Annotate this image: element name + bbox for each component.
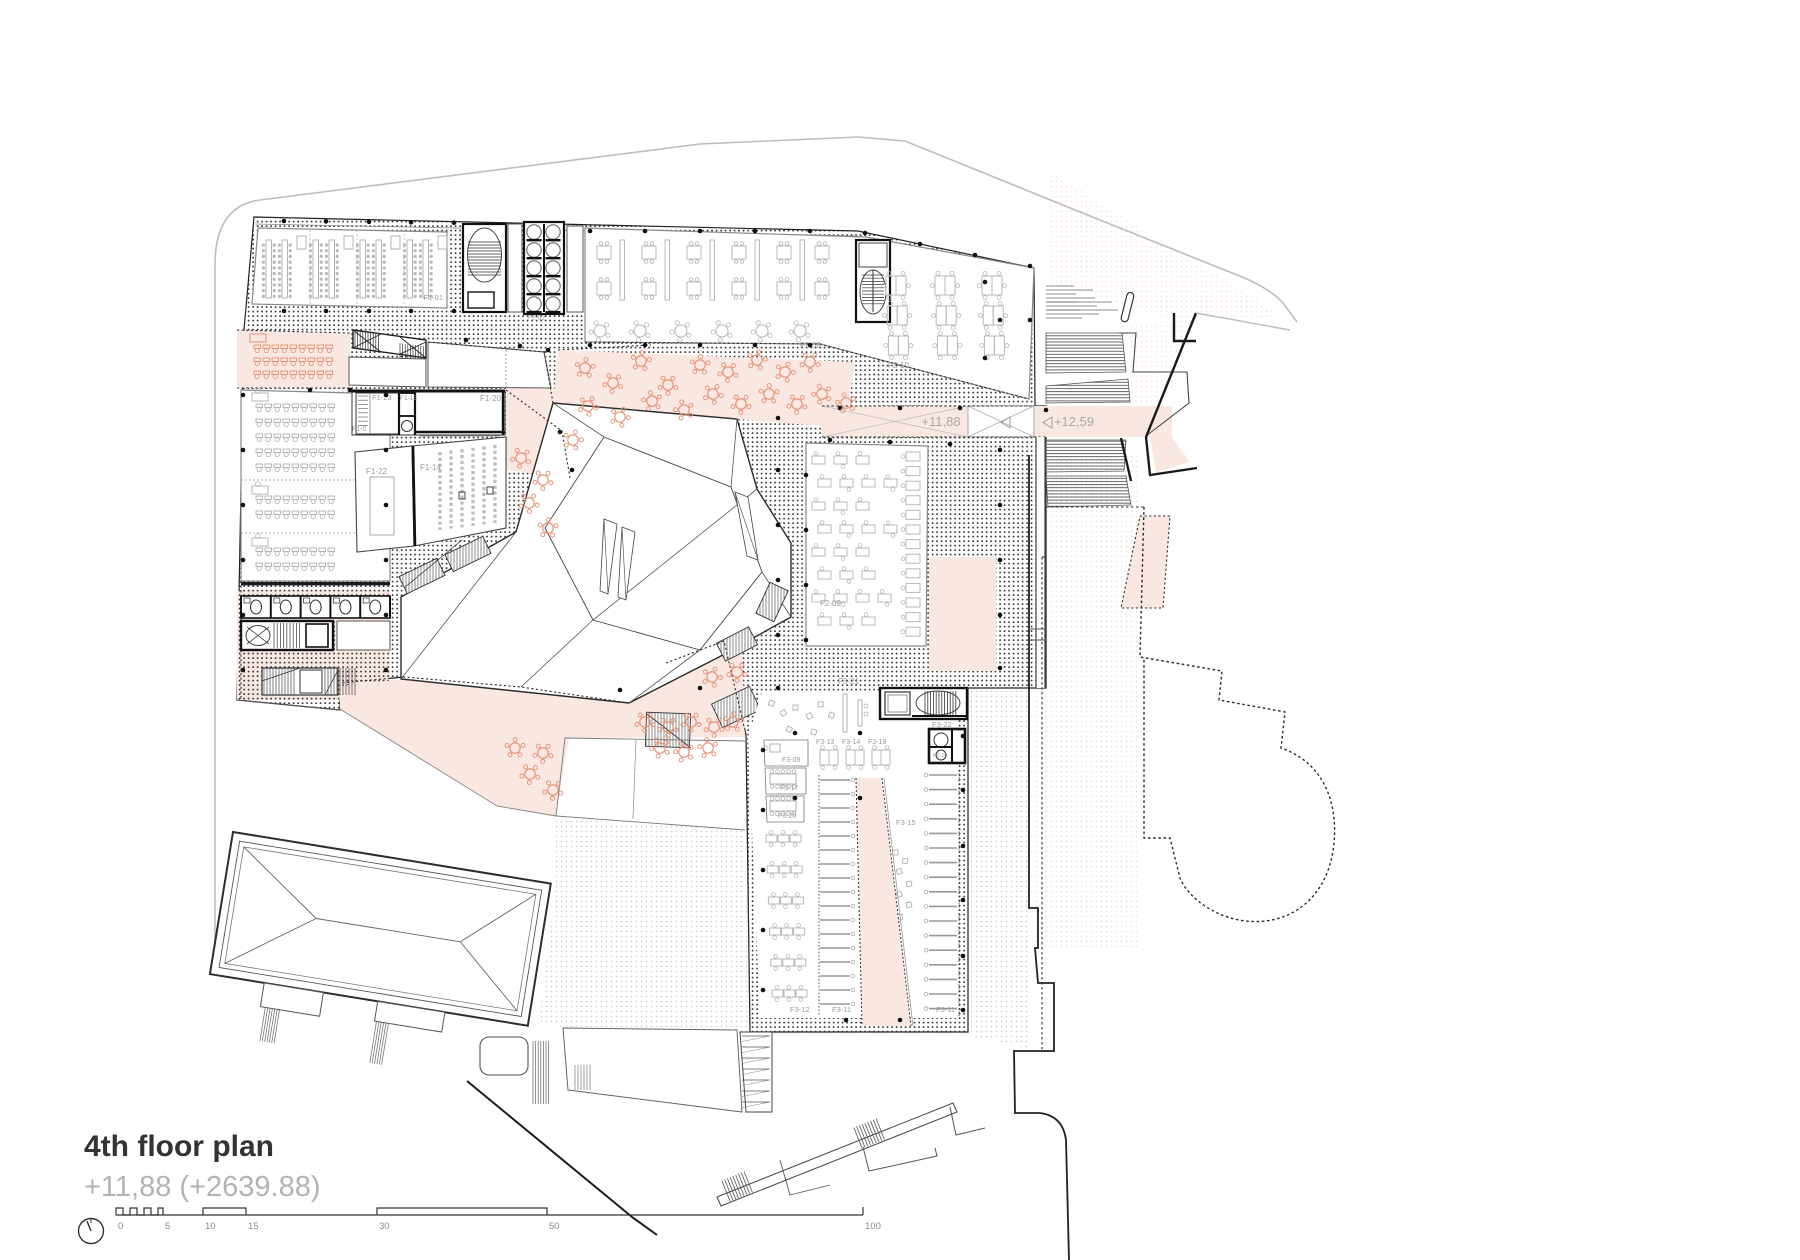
svg-text:F3-11: F3-11 (832, 1005, 851, 1014)
svg-text:15: 15 (248, 1221, 259, 1232)
svg-text:F3-19: F3-19 (868, 739, 886, 746)
svg-text:+11,88 (+2639.88): +11,88 (+2639.88) (84, 1171, 321, 1203)
svg-text:F3-15: F3-15 (896, 818, 916, 827)
svg-text:F3-11: F3-11 (936, 1005, 955, 1014)
svg-text:F6-18: F6-18 (933, 753, 947, 759)
svg-text:F2-02: F2-02 (527, 315, 545, 322)
svg-text:F1-01: F1-01 (423, 293, 443, 302)
svg-text:F1-22: F1-22 (366, 467, 387, 476)
svg-text:F3-09: F3-09 (782, 757, 800, 764)
svg-text:F3-14: F3-14 (842, 739, 860, 746)
svg-text:0: 0 (118, 1221, 123, 1232)
svg-text:F2-09: F2-09 (820, 599, 841, 608)
svg-text:+12,59: +12,59 (1054, 414, 1094, 429)
svg-text:50: 50 (549, 1221, 560, 1232)
svg-text:F3-17: F3-17 (780, 785, 798, 792)
svg-text:F1-20: F1-20 (480, 394, 501, 403)
svg-text:F1-0: F1-0 (352, 426, 367, 433)
svg-text:4th floor plan: 4th floor plan (84, 1130, 274, 1163)
svg-text:F3-22: F3-22 (932, 720, 952, 729)
svg-text:100: 100 (865, 1221, 881, 1232)
svg-text:+11,88: +11,88 (921, 414, 960, 429)
svg-text:30: 30 (379, 1221, 390, 1232)
svg-text:F1-23: F1-23 (372, 393, 392, 402)
svg-text:F3-21: F3-21 (838, 677, 859, 686)
svg-text:5: 5 (165, 1221, 170, 1232)
svg-text:F3-20: F3-20 (778, 813, 796, 820)
svg-text:F3-13: F3-13 (816, 739, 834, 746)
svg-text:10: 10 (205, 1221, 216, 1232)
svg-text:F1-14: F1-14 (420, 463, 441, 472)
svg-text:F1-15: F1-15 (400, 395, 417, 402)
svg-text:F3-12: F3-12 (790, 1005, 810, 1014)
